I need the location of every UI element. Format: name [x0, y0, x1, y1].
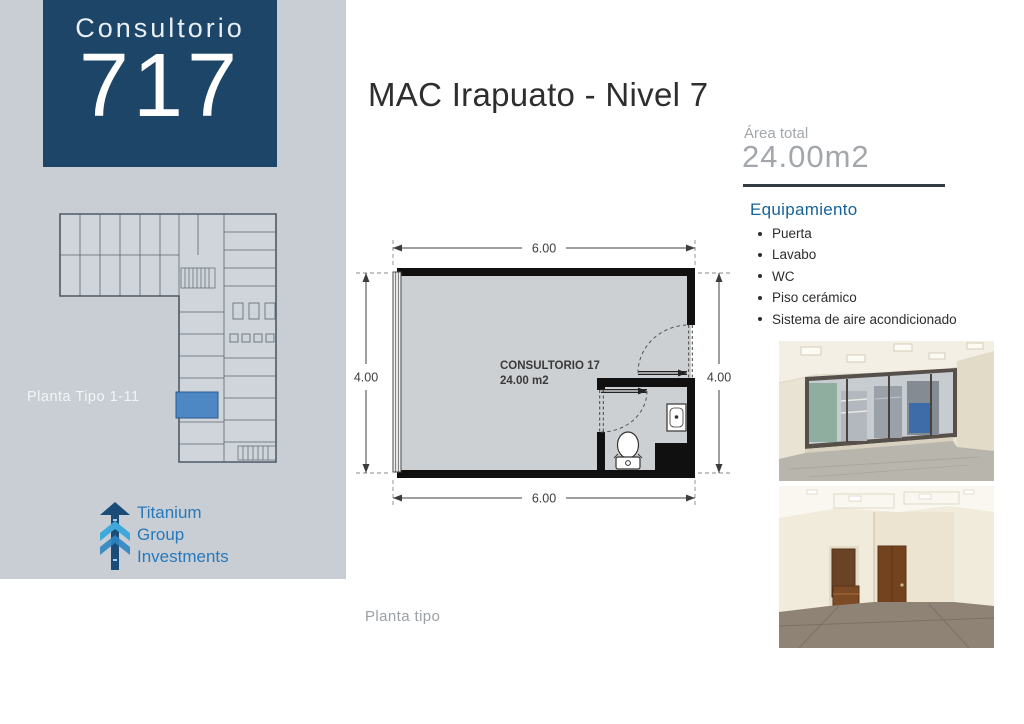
highlighted-unit-room: [176, 392, 218, 418]
keyplan-caption: Planta Tipo 1-11: [27, 389, 140, 405]
equipment-heading: Equipamiento: [750, 200, 858, 220]
left-door-and-cabinet: [832, 549, 859, 612]
equipment-item: Lavabo: [758, 244, 957, 265]
building-keyplan-thumbnail: [58, 208, 280, 466]
dim-right-label: 4.00: [707, 371, 731, 385]
divider-line: [743, 184, 945, 187]
unit-number: 717: [43, 44, 277, 130]
sidebar: Consultorio 717: [0, 0, 346, 579]
sink-icon: [667, 404, 686, 431]
room-name-label: CONSULTORIO 17: [500, 360, 600, 372]
photo-office-window: [779, 341, 994, 481]
logo-building-icon: [100, 502, 130, 572]
equipment-item: Puerta: [758, 223, 957, 244]
unit-card: Consultorio 717: [43, 0, 277, 167]
dim-left-label: 4.00: [354, 371, 378, 385]
equipment-item: Piso cerámico: [758, 287, 957, 308]
logo-line-2: Group: [137, 524, 229, 546]
photo-office-doors: [779, 486, 994, 648]
area-total-value: 24.00m2: [742, 139, 870, 175]
dim-top-label: 6.00: [532, 242, 556, 256]
floorplan-drawing: CONSULTORIO 17 24.00 m2 6.00 6.00 4.00 4…: [340, 228, 740, 520]
window-city-view: [809, 381, 939, 442]
logo-line-1: Titanium: [137, 502, 229, 524]
flyer-page: Consultorio 717: [0, 0, 1024, 724]
equipment-item: WC: [758, 266, 957, 287]
window-glazing: [393, 272, 401, 472]
dim-bottom-label: 6.00: [532, 492, 556, 506]
floor-area: [401, 272, 691, 474]
room-area-label: 24.00 m2: [500, 375, 549, 387]
floorplan-caption: Planta tipo: [365, 608, 440, 625]
company-logo: Titanium Group Investments: [100, 502, 229, 572]
equipment-list: Puerta Lavabo WC Piso cerámico Sistema d…: [758, 223, 957, 330]
page-title: MAC Irapuato - Nivel 7: [368, 76, 708, 114]
logo-line-3: Investments: [137, 546, 229, 568]
equipment-item: Sistema de aire acondicionado: [758, 309, 957, 330]
logo-text: Titanium Group Investments: [137, 502, 229, 572]
